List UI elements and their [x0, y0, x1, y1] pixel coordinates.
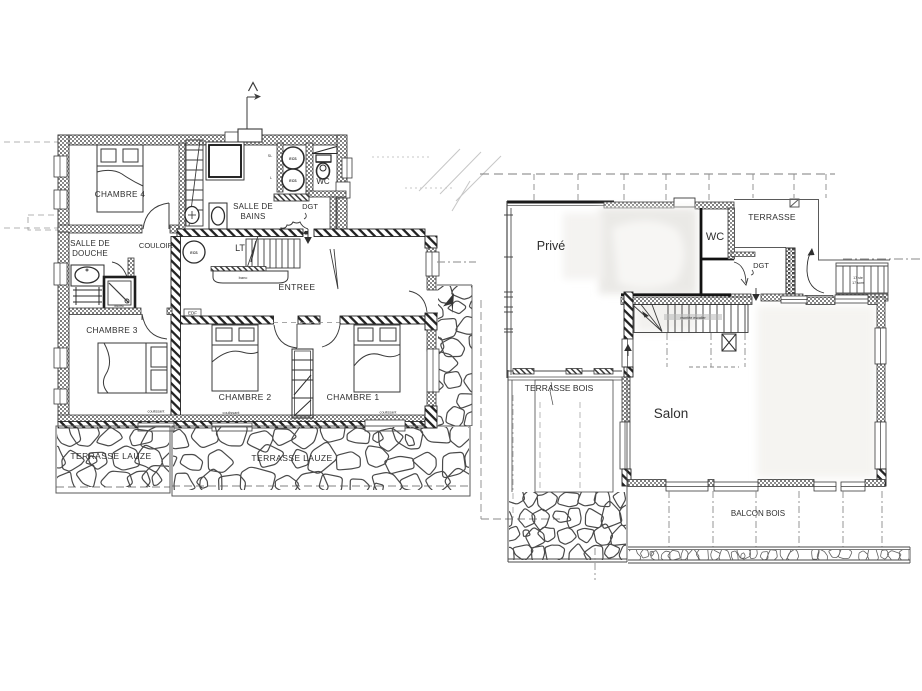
svg-text:ECS: ECS	[190, 251, 198, 255]
svg-text:Salon: Salon	[654, 406, 689, 421]
svg-text:L: L	[270, 176, 272, 180]
svg-text:CHAMBRE 2: CHAMBRE 2	[219, 392, 272, 402]
svg-text:BALCON BOIS: BALCON BOIS	[731, 509, 785, 518]
svg-text:ECS: ECS	[289, 179, 297, 183]
svg-text:WC: WC	[316, 177, 330, 186]
svg-text:SALLE DE: SALLE DE	[70, 239, 110, 248]
svg-text:EDF: EDF	[188, 311, 197, 316]
svg-text:coulissant: coulissant	[380, 411, 398, 415]
svg-text:montée escalier: montée escalier	[680, 316, 706, 320]
svg-text:DGT: DGT	[302, 202, 318, 211]
svg-text:SALLE DE: SALLE DE	[233, 202, 273, 211]
svg-text:douche: douche	[114, 304, 124, 308]
svg-text:TERRASSE LAUZE: TERRASSE LAUZE	[70, 451, 151, 461]
svg-text:TERRASSE: TERRASSE	[748, 212, 796, 222]
svg-text:COULOIR: COULOIR	[139, 241, 174, 250]
svg-text:Privé: Privé	[537, 239, 566, 253]
svg-text:BAINS: BAINS	[240, 212, 265, 221]
svg-text:CHAMBRE 3: CHAMBRE 3	[86, 325, 138, 335]
svg-text:DGT: DGT	[753, 261, 769, 270]
svg-text:SL: SL	[268, 154, 272, 158]
svg-text:ECS: ECS	[289, 157, 297, 161]
svg-text:coulissant: coulissant	[148, 410, 166, 414]
svg-text:45: 45	[304, 231, 308, 235]
svg-text:TERRASSE LAUZE: TERRASSE LAUZE	[251, 453, 332, 463]
svg-text:CHAMBRE 4: CHAMBRE 4	[95, 190, 146, 199]
svg-text:WC: WC	[706, 231, 724, 243]
svg-text:CHAMBRE 1: CHAMBRE 1	[327, 392, 380, 402]
svg-text:banc: banc	[239, 275, 248, 280]
svg-text:DOUCHE: DOUCHE	[72, 249, 108, 258]
svg-text:coulissant: coulissant	[223, 411, 241, 415]
svg-text:17 som: 17 som	[852, 281, 864, 285]
svg-text:TERRASSE BOIS: TERRASSE BOIS	[525, 383, 594, 393]
svg-text:17 ste: 17 ste	[853, 276, 863, 280]
svg-text:LT: LT	[235, 243, 245, 253]
svg-text:ENTREE: ENTREE	[279, 282, 316, 292]
